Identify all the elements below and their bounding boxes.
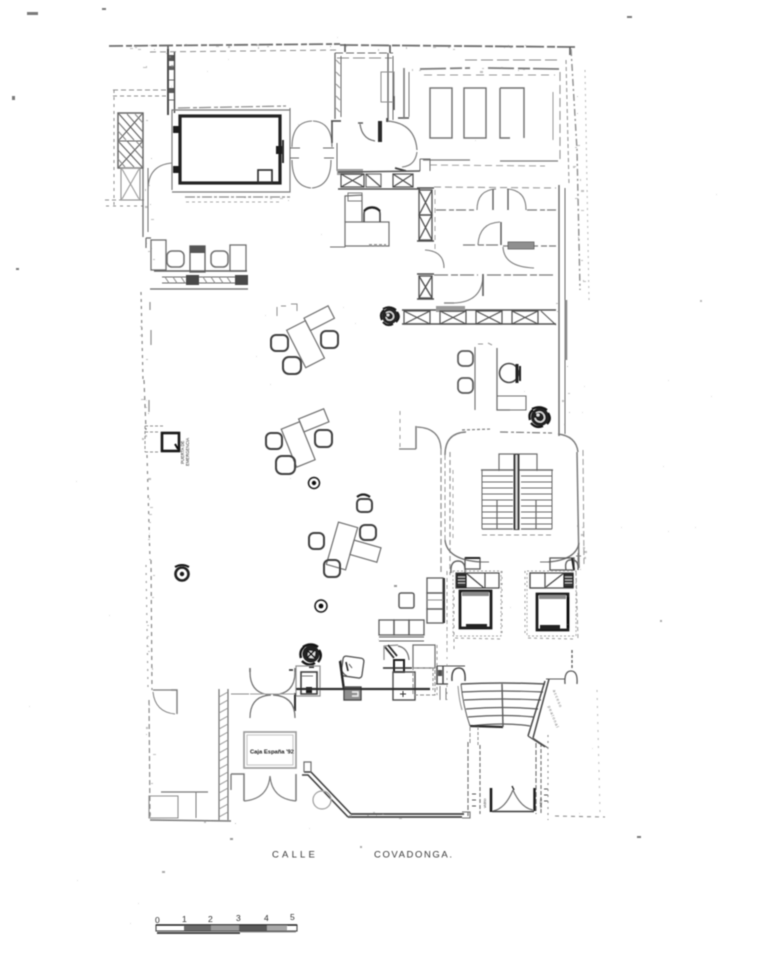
svg-text:vidrio: vidrio: [482, 798, 487, 808]
svg-text:vidrio: vidrio: [538, 798, 543, 808]
svg-text:p e a t o n a l: p e a t o n a l: [547, 705, 560, 728]
svg-text:2: 2: [208, 914, 213, 924]
svg-text:0: 0: [155, 915, 160, 925]
svg-text:Caja España '92: Caja España '92: [250, 750, 294, 756]
svg-text:4: 4: [264, 913, 269, 923]
svg-text:3: 3: [236, 913, 241, 923]
svg-text:EMERGENCIA: EMERGENCIA: [185, 438, 190, 466]
svg-text:a c c e s o: a c c e s o: [552, 689, 564, 708]
svg-text:CALLE: CALLE: [272, 850, 318, 860]
svg-text:1: 1: [182, 914, 187, 924]
svg-text:5: 5: [290, 912, 295, 922]
svg-text:COVADONGA.: COVADONGA.: [374, 850, 454, 860]
